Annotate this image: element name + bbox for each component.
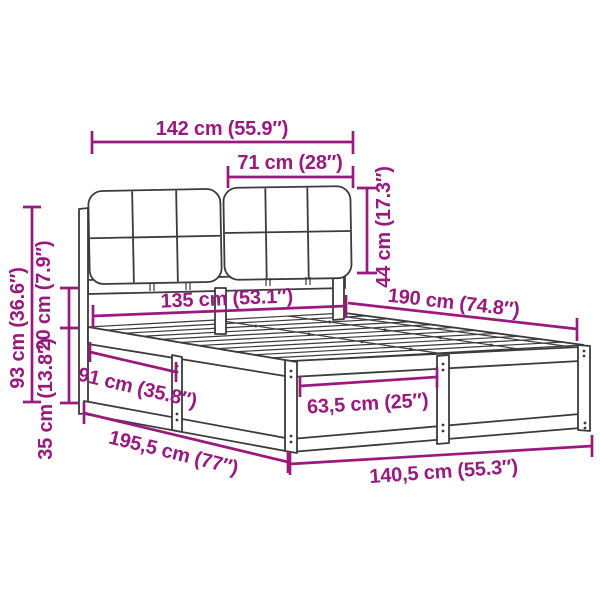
headboard-cushion-left: [88, 189, 222, 285]
dim-cushion-height-label: 44 cm (17.3″): [373, 166, 395, 288]
dim-clearance-label: 35 cm (13.8″): [35, 338, 57, 460]
dim-rail-gap-label: 20 cm (7.9″): [33, 241, 55, 352]
dim-cushion-width-label: 71 cm (28″): [237, 152, 342, 174]
headboard-right-post: [333, 276, 344, 320]
screw-dot: [439, 336, 442, 339]
front-corner-leg: [285, 360, 297, 453]
screw-dot: [328, 321, 331, 324]
screw-dot: [307, 332, 310, 335]
screw-dot: [254, 325, 257, 328]
bed-dimension-diagram: 142 cm (55.9″) 71 cm (28″) 44 cm (17.3″)…: [0, 0, 600, 600]
screw-dot: [409, 348, 412, 351]
screw-dot: [360, 340, 363, 343]
foot-right-leg: [578, 345, 590, 431]
headboard-cushion-right: [223, 186, 351, 280]
dim-headboard-width-label: 142 cm (55.9″): [156, 118, 288, 140]
screw-dot: [384, 328, 387, 331]
screw-dot: [490, 344, 493, 347]
dim-total-height-label: 93 cm (36.6″): [7, 267, 29, 389]
